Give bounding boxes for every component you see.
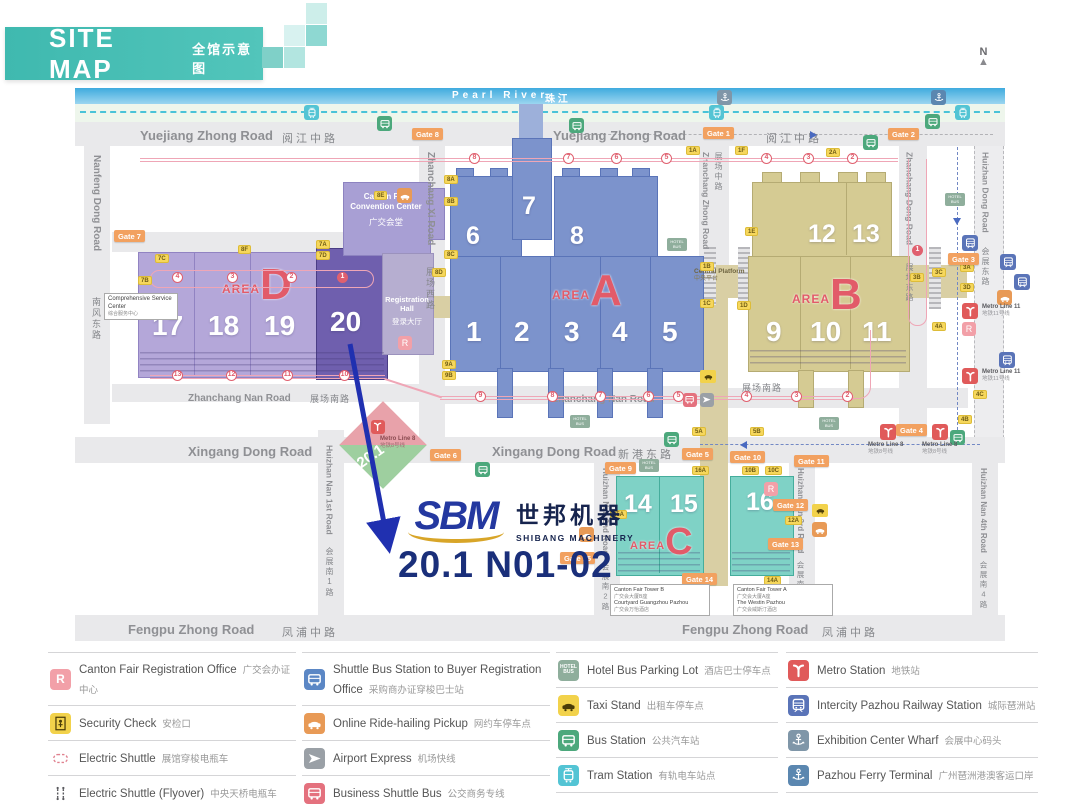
dock-stripes bbox=[732, 552, 790, 572]
hall-divider bbox=[500, 257, 501, 369]
tower-a-box: Canton Fair Tower A 广交会大厦A座 The Westin P… bbox=[733, 584, 833, 616]
arrow-left-icon bbox=[740, 441, 747, 449]
hotel-bus-icon: HOTEL BUS bbox=[819, 417, 839, 430]
legend-column-2: Shuttle Bus Station to Buyer Registratio… bbox=[302, 652, 550, 810]
hall-number: 10 bbox=[810, 316, 841, 348]
hall-number: 20 bbox=[330, 306, 361, 338]
registration-hall-label: Registration Hall 登录大厅 bbox=[383, 295, 431, 327]
area-c-label: AREA C bbox=[630, 528, 693, 558]
tower-b-box: Canton Fair Tower B 广交会大厦B座 Courtyard Gu… bbox=[610, 584, 710, 616]
shuttle-stop: 1 bbox=[337, 272, 348, 283]
bus-station-icon bbox=[569, 118, 584, 133]
gate-tag: 1A bbox=[686, 146, 700, 155]
dock-stripes bbox=[750, 350, 906, 368]
intercity-rail-icon bbox=[1014, 274, 1030, 290]
ride-hailing-icon bbox=[812, 522, 827, 537]
intercity-rail-icon bbox=[788, 695, 809, 716]
ride-hailing-icon bbox=[304, 713, 325, 734]
legend-item: Taxi Stand出租车停车点 bbox=[556, 688, 778, 723]
shuttle-stop: 2 bbox=[286, 272, 297, 283]
metro-line8-label: Metro Line 8 地铁8号线 bbox=[868, 442, 903, 455]
wharf-icon bbox=[788, 730, 809, 751]
sbm-logo-cn: 世邦机器 bbox=[516, 496, 634, 530]
gate-tag: 8C bbox=[444, 250, 458, 259]
compass: N ▲ bbox=[978, 46, 989, 67]
compass-north-icon: ▲ bbox=[978, 58, 989, 67]
site-map-page: SITE MAP 全馆示意图 N ▲ Pearl River 珠 江 Yueji… bbox=[0, 0, 1080, 810]
gate-tag: 8D bbox=[432, 268, 446, 277]
gate-label: Gate 6 bbox=[430, 449, 461, 461]
shuttle-stop: 3 bbox=[227, 272, 238, 283]
legend-item: Electric Shuttle展馆穿梭电瓶车 bbox=[48, 741, 296, 776]
hall-bridge-south bbox=[798, 370, 814, 408]
gate-tag: 10B bbox=[742, 466, 759, 475]
road-label: Nanfeng Dong Road 南风东路 bbox=[90, 155, 103, 341]
shuttle-stop: 11 bbox=[282, 370, 293, 381]
gate-label: Gate 2 bbox=[888, 128, 919, 140]
gate-tag: 9A bbox=[442, 360, 456, 369]
legend-item: Electric Shuttle (Flyover)中央天桥电瓶车 bbox=[48, 776, 296, 810]
road-label: 凤浦中路 bbox=[822, 623, 878, 641]
gate-label: Gate 11 bbox=[794, 455, 829, 467]
hotel-bus-icon: HOTEL BUS bbox=[639, 459, 659, 472]
taxi-icon bbox=[700, 370, 716, 383]
shuttle-stop: 1 bbox=[912, 245, 923, 256]
hall-number: 12 bbox=[808, 220, 836, 249]
bus-station-icon bbox=[558, 730, 579, 751]
gate-tag: 4C bbox=[973, 390, 987, 399]
shuttle-route-north bbox=[140, 158, 898, 162]
shuttle-stop: 5 bbox=[661, 153, 672, 164]
legend-column-4: Metro Station地铁站 Intercity Pazhou Railwa… bbox=[786, 652, 1038, 793]
gate-tag: 7D bbox=[316, 251, 330, 260]
metro-icon bbox=[788, 660, 809, 681]
road-label: Zhanchang Zhong Road 展场中路 bbox=[701, 152, 724, 249]
legend-item: Tram Station有轨电车站点 bbox=[556, 758, 778, 793]
metro-line11-label: Metro Line 11 地铁11号线 bbox=[982, 369, 1020, 382]
gate-tag: 1D bbox=[737, 301, 751, 310]
legend-column-3: HOTEL BUS Hotel Bus Parking Lot酒店巴士停车点 T… bbox=[556, 652, 778, 793]
shuttle-stop: 12 bbox=[226, 370, 237, 381]
legend-item: Online Ride-hailing Pickup网约车停车点 bbox=[302, 706, 550, 741]
area-a-label: AREA A bbox=[552, 274, 622, 308]
hall-number: 18 bbox=[208, 310, 239, 342]
hall-number: 15 bbox=[670, 490, 698, 519]
sbm-logo-sub: SHIBANG MACHINERY bbox=[516, 533, 634, 543]
gate-tag: 16A bbox=[692, 466, 709, 475]
legend-column-1: R Canton Fair Registration Office广交会办证中心… bbox=[48, 652, 296, 810]
registration-icon: R bbox=[50, 669, 71, 690]
tram-station-icon bbox=[955, 105, 970, 120]
gate-label: Gate 12 bbox=[773, 499, 808, 511]
hall-bridge-south bbox=[497, 368, 513, 418]
shuttle-stop: 6 bbox=[611, 153, 622, 164]
pearl-river-label-en: Pearl River bbox=[452, 90, 548, 101]
page-title: SITE MAP bbox=[49, 23, 180, 85]
legend-item: Intercity Pazhou Railway Station城际琶洲站 bbox=[786, 688, 1038, 723]
shuttle-stop: 4 bbox=[172, 272, 183, 283]
shuttle-route-b-south bbox=[702, 396, 854, 400]
gate-tag: 3D bbox=[960, 283, 974, 292]
gate-label: Gate 7 bbox=[114, 230, 145, 242]
shuttle-route-east-loop bbox=[908, 159, 927, 326]
shuttle-stop: 3 bbox=[803, 153, 814, 164]
tram-station-icon bbox=[709, 105, 724, 120]
business-shuttle-icon bbox=[304, 783, 325, 804]
hotel-bus-icon: HOTEL BUS bbox=[558, 660, 579, 681]
hall-divider bbox=[650, 257, 651, 369]
metro-line11-label: Metro Line 11 地铁11号线 bbox=[982, 304, 1020, 317]
legend-item: Pazhou Ferry Terminal广州琶洲港澳客运口岸 bbox=[786, 758, 1038, 793]
gate-tag: 8F bbox=[238, 245, 251, 254]
shuttle-stop: 8 bbox=[469, 153, 480, 164]
registration-icon: R bbox=[962, 322, 976, 336]
legend-item: Exhibition Center Wharf会展中心码头 bbox=[786, 723, 1038, 758]
area-b-label: AREA B bbox=[792, 278, 862, 312]
hall-number: 6 bbox=[466, 222, 480, 251]
tram-station-icon bbox=[304, 105, 319, 120]
checker-square bbox=[284, 25, 305, 46]
gate-tag: 1E bbox=[745, 227, 758, 236]
hotel-bus-icon: HOTEL BUS bbox=[667, 238, 687, 251]
intercity-rail-icon bbox=[999, 352, 1015, 368]
shuttle-stop: 7 bbox=[595, 391, 606, 402]
hall-number: 2 bbox=[514, 316, 530, 348]
bus-station-icon bbox=[863, 135, 878, 150]
ride-hailing-icon bbox=[397, 188, 412, 203]
booth-number: 20.1 N01-02 bbox=[398, 544, 613, 586]
metro-line8-label: Metro Line 8 地铁8号线 bbox=[922, 442, 957, 455]
gate-label: Gate 4 bbox=[896, 424, 927, 436]
gate-label: Gate 1 bbox=[703, 127, 734, 139]
shuttle-stop: 3 bbox=[791, 391, 802, 402]
metro-icon bbox=[880, 424, 896, 440]
gate-label: Gate 3 bbox=[948, 253, 979, 265]
hall-7-tower bbox=[512, 138, 552, 240]
airport-express-icon bbox=[304, 748, 325, 769]
wharf-icon bbox=[931, 90, 946, 105]
sbm-logo: SBM bbox=[415, 494, 498, 538]
gate-tag: 4A bbox=[932, 322, 946, 331]
gate-tag: 3C bbox=[932, 268, 946, 277]
taxi-icon bbox=[558, 695, 579, 716]
legend-item: Business Shuttle Bus公交商务专线 bbox=[302, 776, 550, 810]
shuttle-stop: 6 bbox=[643, 391, 654, 402]
legend-item: Bus Station公共汽车站 bbox=[556, 723, 778, 758]
road-gate7-access bbox=[112, 232, 343, 252]
tram-station-icon bbox=[558, 765, 579, 786]
electric-shuttle-icon bbox=[50, 748, 71, 769]
gate-tag: 12A bbox=[785, 516, 802, 525]
gate-tag: 3B bbox=[910, 273, 924, 282]
road-label: Huizhan Dong Road 会展东路 bbox=[980, 152, 991, 287]
ride-hailing-icon bbox=[997, 290, 1012, 305]
gate-tag: 7C bbox=[155, 254, 169, 263]
road-label: Yuejiang Zhong Road bbox=[140, 127, 273, 145]
central-corridor bbox=[700, 296, 728, 586]
gate-tag: 9B bbox=[442, 371, 456, 380]
metro-icon bbox=[371, 420, 385, 434]
gate-tag: 1C bbox=[700, 299, 714, 308]
hotel-bus-icon: HOTEL BUS bbox=[570, 415, 590, 428]
checker-square bbox=[306, 3, 327, 24]
road-label: Fengpu Zhong Road bbox=[682, 621, 808, 639]
ferry-icon bbox=[788, 765, 809, 786]
hall-number: 13 bbox=[852, 220, 880, 249]
hall-divider bbox=[550, 257, 551, 369]
gate-tag: 5A bbox=[692, 427, 706, 436]
airport-express-icon bbox=[700, 393, 714, 407]
gate-tag: 8A bbox=[444, 175, 458, 184]
gate-label: Gate 10 bbox=[730, 451, 765, 463]
shuttle-stop: 13 bbox=[172, 370, 183, 381]
road-label: Xingang Dong Road bbox=[492, 443, 616, 461]
hall-number: 3 bbox=[564, 316, 580, 348]
legend-item: Metro Station地铁站 bbox=[786, 652, 1038, 688]
legend-item: R Canton Fair Registration Office广交会办证中心 bbox=[48, 652, 296, 706]
legend-item: Security Check安检口 bbox=[48, 706, 296, 741]
hall-divider bbox=[846, 183, 847, 255]
checker-square bbox=[262, 47, 283, 68]
metro-line8-route bbox=[957, 147, 958, 445]
intercity-rail-icon bbox=[962, 235, 978, 251]
road-label: Huizhan Nan 1st Road 会展南1路 bbox=[324, 445, 335, 598]
taxi-icon bbox=[812, 504, 828, 517]
shuttle-stop: 2 bbox=[847, 153, 858, 164]
registration-icon: R bbox=[398, 336, 412, 350]
hall-number: 9 bbox=[766, 316, 782, 348]
electric-shuttle-flyover-icon bbox=[50, 783, 71, 804]
hall-number: 4 bbox=[612, 316, 628, 348]
gate-label: Gate 9 bbox=[605, 462, 636, 474]
gate-tag: 8E bbox=[374, 191, 387, 200]
pearl-river-label-cn: 珠 江 bbox=[545, 90, 568, 105]
metro-icon bbox=[932, 424, 948, 440]
gate-tag: 7A bbox=[316, 240, 330, 249]
gate-tag: 5B bbox=[750, 427, 764, 436]
title-banner: SITE MAP 全馆示意图 bbox=[5, 27, 263, 80]
service-center-box: Comprehensive Service Center 综合服务中心 bbox=[104, 293, 178, 320]
shuttle-route-join bbox=[852, 330, 871, 399]
road-label: Zhanchang Xi Road 展场西路 bbox=[424, 152, 437, 311]
metro-icon bbox=[962, 368, 978, 384]
road-label: Huizhan Nan 4th Road 会展南4路 bbox=[978, 468, 989, 610]
shuttle-stop: 2 bbox=[842, 391, 853, 402]
legend-item: Airport Express机场快线 bbox=[302, 741, 550, 776]
registration-icon: R bbox=[764, 482, 778, 496]
shuttle-bus-icon bbox=[304, 669, 325, 690]
bus-station-icon bbox=[475, 462, 490, 477]
hall-number: 7 bbox=[522, 192, 536, 221]
road-label: Xingang Dong Road bbox=[188, 443, 312, 461]
gate-label: Gate 13 bbox=[768, 538, 803, 550]
arrow-down-icon bbox=[953, 218, 961, 225]
road-label: 阅江中路 bbox=[282, 129, 338, 147]
wharf-icon bbox=[717, 90, 732, 105]
legend-item: Shuttle Bus Station to Buyer Registratio… bbox=[302, 652, 550, 706]
road-label: Fengpu Zhong Road bbox=[128, 621, 254, 639]
shuttle-stop: 8 bbox=[547, 391, 558, 402]
security-check-icon bbox=[50, 713, 71, 734]
intercity-rail-icon bbox=[1000, 254, 1016, 270]
legend-item: HOTEL BUS Hotel Bus Parking Lot酒店巴士停车点 bbox=[556, 652, 778, 688]
stairs bbox=[929, 247, 941, 309]
gate-tag: 10C bbox=[765, 466, 782, 475]
bus-station-icon bbox=[925, 114, 940, 129]
metro-icon bbox=[962, 303, 978, 319]
checker-square bbox=[284, 47, 305, 68]
shuttle-stop: 10 bbox=[339, 370, 350, 381]
hotel-bus-icon: HOTEL BUS bbox=[945, 193, 965, 206]
metro-line8-label: Metro Line 8 地铁8号线 bbox=[380, 436, 415, 449]
booth-logo: SBM 世邦机器 SHIBANG MACHINERY bbox=[408, 496, 634, 543]
hall-number: 5 bbox=[662, 316, 678, 348]
gate-tag: 2A bbox=[826, 148, 840, 157]
hall-number: 19 bbox=[264, 310, 295, 342]
bus-station-icon bbox=[377, 116, 392, 131]
shuttle-stop: 4 bbox=[761, 153, 772, 164]
gate-label: Gate 5 bbox=[682, 448, 713, 460]
arrow-right-icon bbox=[810, 131, 817, 139]
bus-station-icon bbox=[664, 432, 679, 447]
gate-label: Gate 8 bbox=[412, 128, 443, 140]
road-label: Zhanchang Nan Road bbox=[188, 388, 291, 406]
page-title-cn: 全馆示意图 bbox=[192, 39, 263, 77]
gate-tag: 7B bbox=[138, 276, 152, 285]
road-label: 凤浦中路 bbox=[282, 623, 338, 641]
shuttle-stop: 9 bbox=[475, 391, 486, 402]
business-shuttle-icon bbox=[683, 393, 697, 407]
hall-number: 8 bbox=[570, 222, 584, 251]
gate-tag: 8B bbox=[444, 197, 458, 206]
shuttle-stop: 7 bbox=[563, 153, 574, 164]
checker-square bbox=[306, 25, 327, 46]
gate-tag: 4B bbox=[958, 415, 972, 424]
gate-tag: 1B bbox=[700, 262, 714, 271]
road-label: 展场南路 bbox=[310, 389, 350, 407]
shuttle-stop: 4 bbox=[741, 391, 752, 402]
hall-number: 1 bbox=[466, 316, 482, 348]
gate-tag: 1F bbox=[735, 146, 748, 155]
